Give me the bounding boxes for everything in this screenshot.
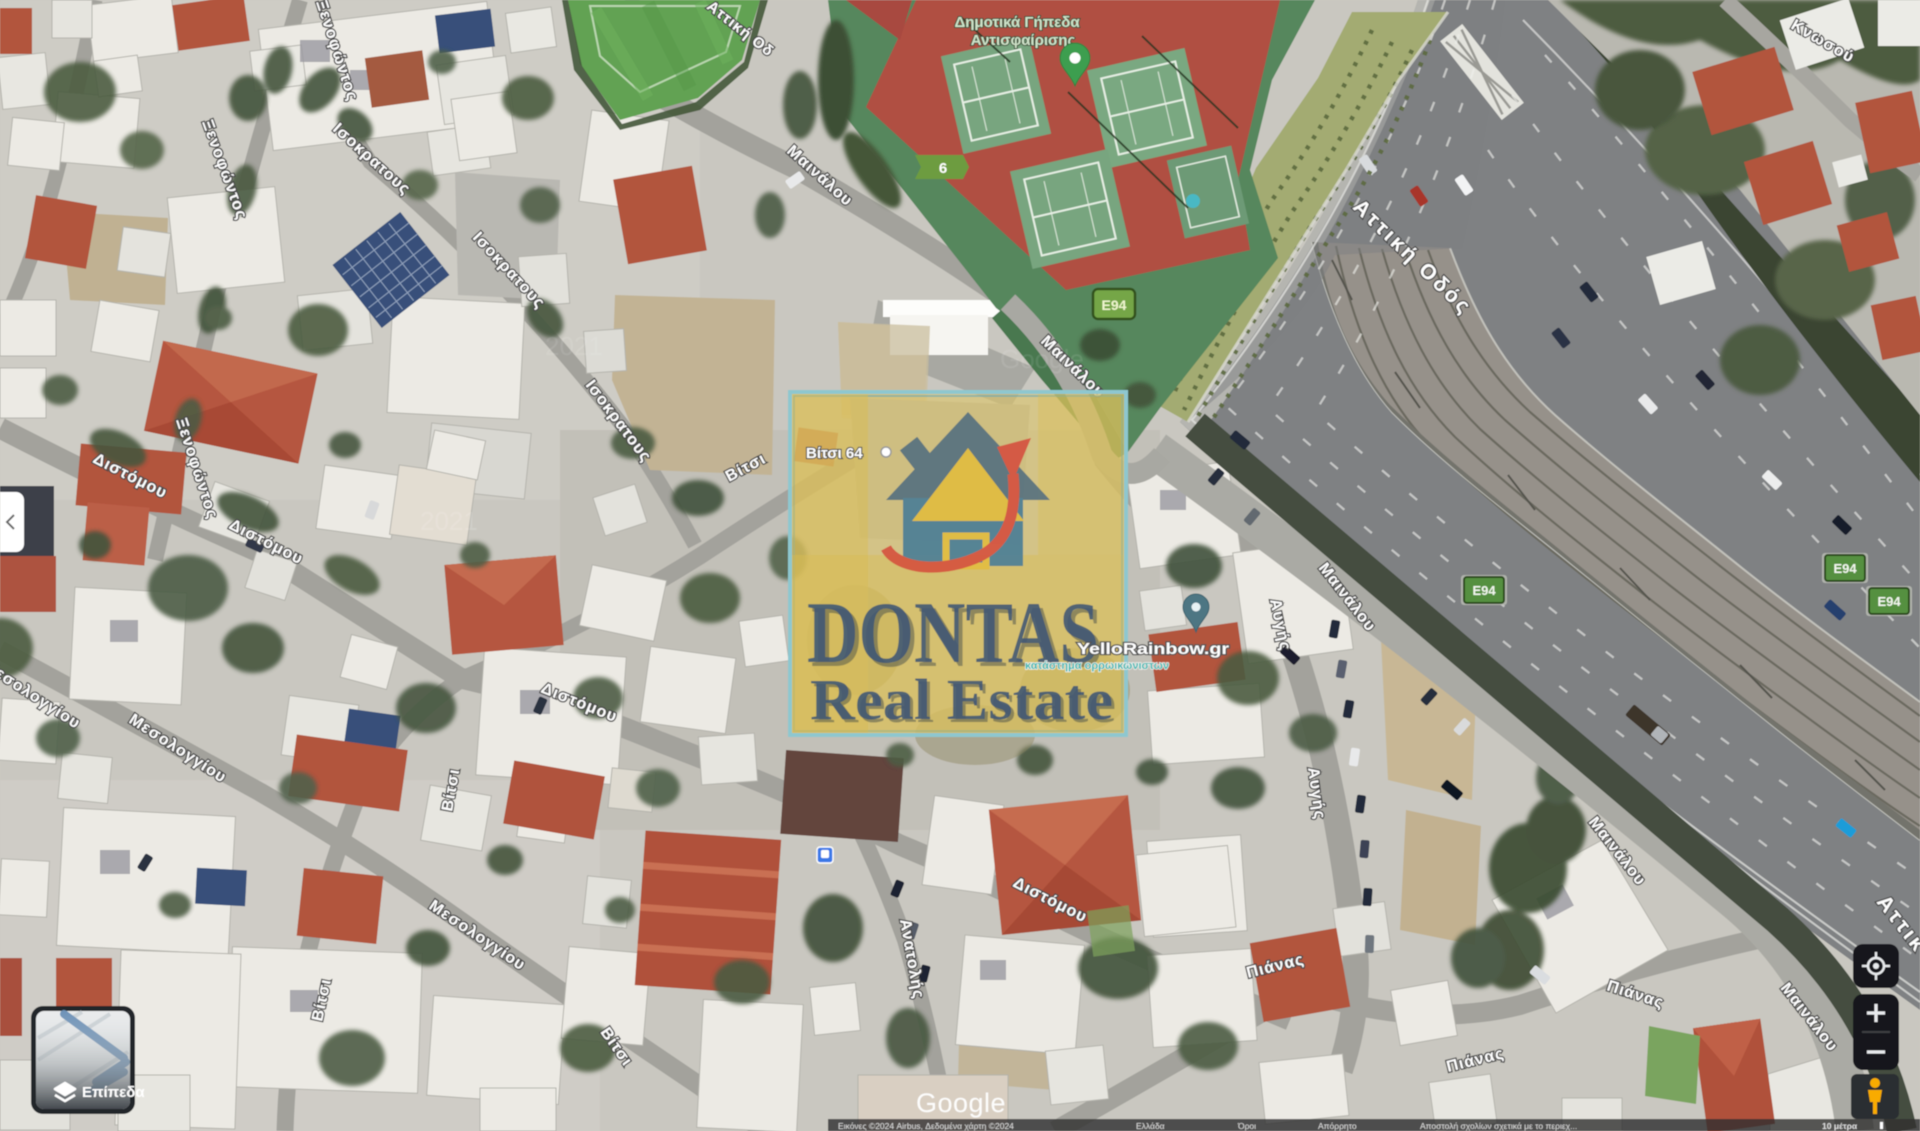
svg-text:Αντισφαίρισης: Αντισφαίρισης <box>971 32 1076 49</box>
svg-text:Όροι: Όροι <box>1237 1121 1256 1131</box>
svg-text:κατάστημα ορρωικωνιστων: κατάστημα ορρωικωνιστων <box>1025 660 1169 672</box>
svg-text:E94: E94 <box>1877 594 1901 609</box>
svg-text:YelloRainbow.gr: YelloRainbow.gr <box>1077 641 1229 658</box>
svg-text:2021: 2021 <box>545 331 603 361</box>
svg-text:Real Estate: Real Estate <box>810 667 1113 732</box>
svg-text:E94: E94 <box>1472 583 1496 598</box>
svg-text:Google: Google <box>916 1088 1006 1118</box>
svg-text:Βίτσι 64: Βίτσι 64 <box>806 445 863 462</box>
svg-text:Ελλάδα: Ελλάδα <box>1136 1121 1165 1131</box>
svg-text:Google: Google <box>1000 344 1084 374</box>
svg-text:Αποστολή σχολίων σχετικά με το: Αποστολή σχολίων σχετικά με το περιεχ... <box>1420 1121 1577 1131</box>
svg-text:Δημοτικά Γήπεδα: Δημοτικά Γήπεδα <box>954 14 1080 31</box>
svg-text:Επίπεδα: Επίπεδα <box>82 1084 145 1101</box>
svg-text:E94: E94 <box>1102 297 1127 313</box>
svg-text:6: 6 <box>939 160 947 177</box>
svg-text:2021: 2021 <box>420 506 478 536</box>
svg-text:E94: E94 <box>1833 561 1857 576</box>
svg-text:Εικόνες ©2024 Airbus, Δεδομένα: Εικόνες ©2024 Airbus, Δεδομένα χάρτη ©20… <box>838 1121 1014 1131</box>
svg-text:Απόρρητο: Απόρρητο <box>1318 1121 1357 1131</box>
svg-text:10 μέτρα: 10 μέτρα <box>1822 1121 1858 1131</box>
